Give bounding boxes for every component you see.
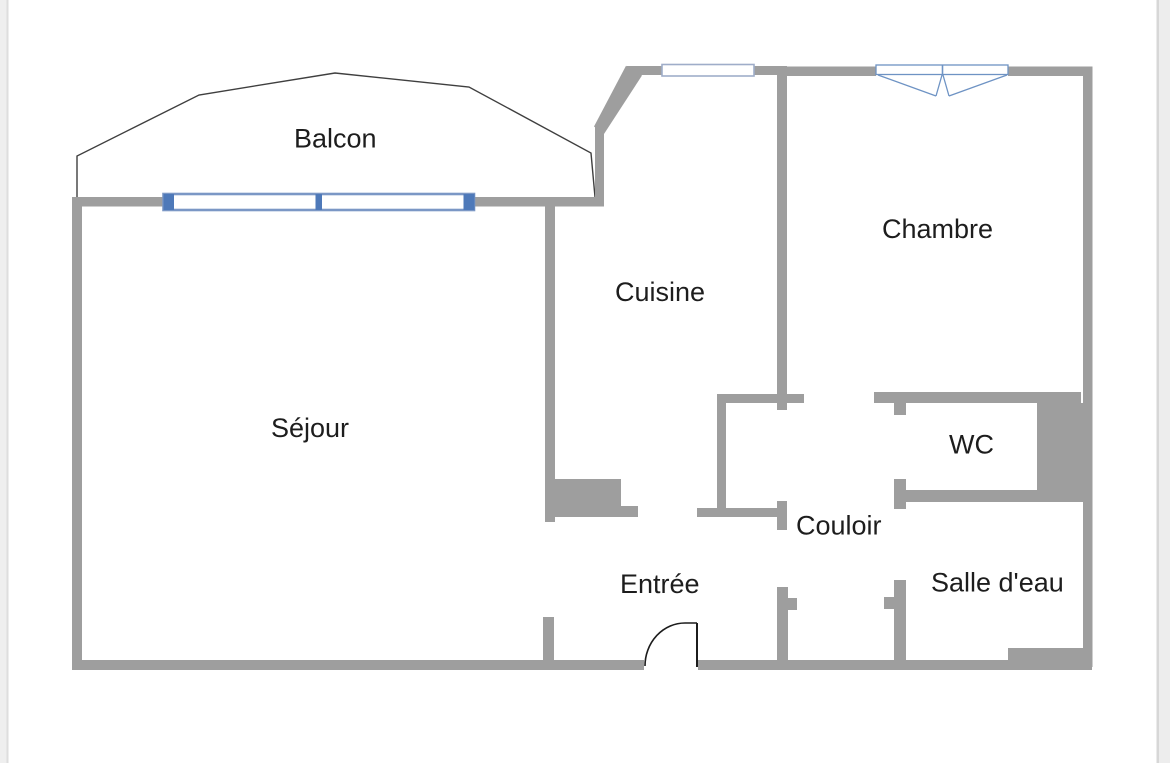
svg-text:Salle d'eau: Salle d'eau — [931, 568, 1064, 598]
svg-text:WC: WC — [949, 430, 994, 460]
svg-text:Chambre: Chambre — [882, 214, 993, 244]
svg-text:Balcon: Balcon — [294, 124, 377, 154]
svg-text:Couloir: Couloir — [796, 511, 882, 541]
svg-text:Cuisine: Cuisine — [615, 277, 705, 307]
svg-text:Entrée: Entrée — [620, 569, 700, 599]
svg-text:Séjour: Séjour — [271, 413, 349, 443]
